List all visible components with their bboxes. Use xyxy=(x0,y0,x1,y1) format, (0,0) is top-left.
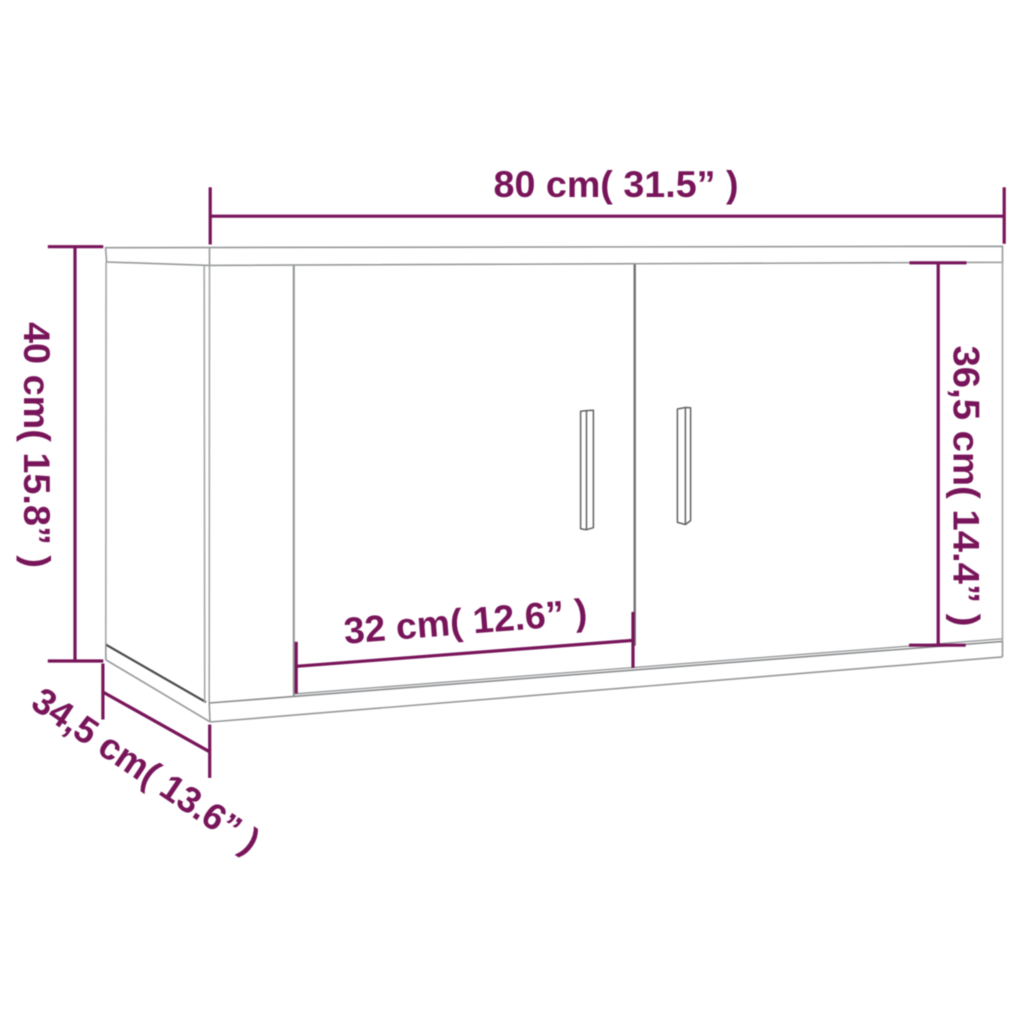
svg-text:80 cm( 31.5” ): 80 cm( 31.5” ) xyxy=(494,164,739,205)
svg-text:32 cm( 12.6” ): 32 cm( 12.6” ) xyxy=(342,591,588,651)
svg-text:36,5 cm( 14.4” ): 36,5 cm( 14.4” ) xyxy=(946,346,987,627)
svg-text:34,5 cm( 13.6” ): 34,5 cm( 13.6” ) xyxy=(25,680,268,862)
svg-text:40 cm( 15.8” ): 40 cm( 15.8” ) xyxy=(16,322,57,568)
